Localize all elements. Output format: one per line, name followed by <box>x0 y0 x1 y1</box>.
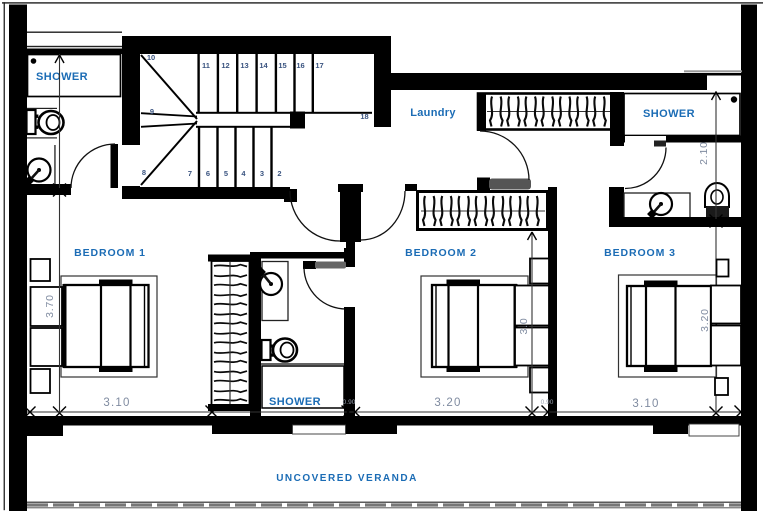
svg-text:BEDROOM 3: BEDROOM 3 <box>604 247 676 259</box>
svg-text:6: 6 <box>206 169 210 178</box>
svg-text:SHOWER: SHOWER <box>36 71 88 83</box>
svg-text:7: 7 <box>188 169 192 178</box>
svg-text:16: 16 <box>296 61 304 70</box>
svg-text:BEDROOM 2: BEDROOM 2 <box>405 247 477 259</box>
svg-text:SHOWER: SHOWER <box>269 396 321 408</box>
svg-text:5: 5 <box>224 169 228 178</box>
svg-text:9: 9 <box>150 107 154 116</box>
svg-text:3.20: 3.20 <box>434 397 461 409</box>
svg-text:Laundry: Laundry <box>410 107 456 119</box>
svg-text:15: 15 <box>278 61 286 70</box>
svg-text:8: 8 <box>142 168 146 177</box>
svg-text:SHOWER: SHOWER <box>643 108 695 120</box>
svg-text:UNCOVERED VERANDA: UNCOVERED VERANDA <box>276 473 418 484</box>
svg-text:10: 10 <box>147 53 155 62</box>
svg-text:3.10: 3.10 <box>103 397 130 409</box>
svg-text:12: 12 <box>221 61 229 70</box>
svg-text:11: 11 <box>202 61 210 70</box>
svg-text:14: 14 <box>259 61 268 70</box>
svg-text:2: 2 <box>277 169 281 178</box>
svg-text:0.90: 0.90 <box>343 399 356 406</box>
svg-text:BEDROOM 1: BEDROOM 1 <box>74 247 146 259</box>
svg-text:3.10: 3.10 <box>632 398 659 410</box>
svg-text:3.0: 3.0 <box>518 318 530 335</box>
svg-text:17: 17 <box>315 61 323 70</box>
svg-text:18: 18 <box>360 112 368 121</box>
svg-text:2.10: 2.10 <box>698 141 710 165</box>
svg-text:3.20: 3.20 <box>699 308 711 332</box>
svg-text:3: 3 <box>260 169 264 178</box>
svg-text:0.90: 0.90 <box>541 399 554 406</box>
svg-text:3.70: 3.70 <box>44 294 56 318</box>
svg-text:13: 13 <box>240 61 248 70</box>
